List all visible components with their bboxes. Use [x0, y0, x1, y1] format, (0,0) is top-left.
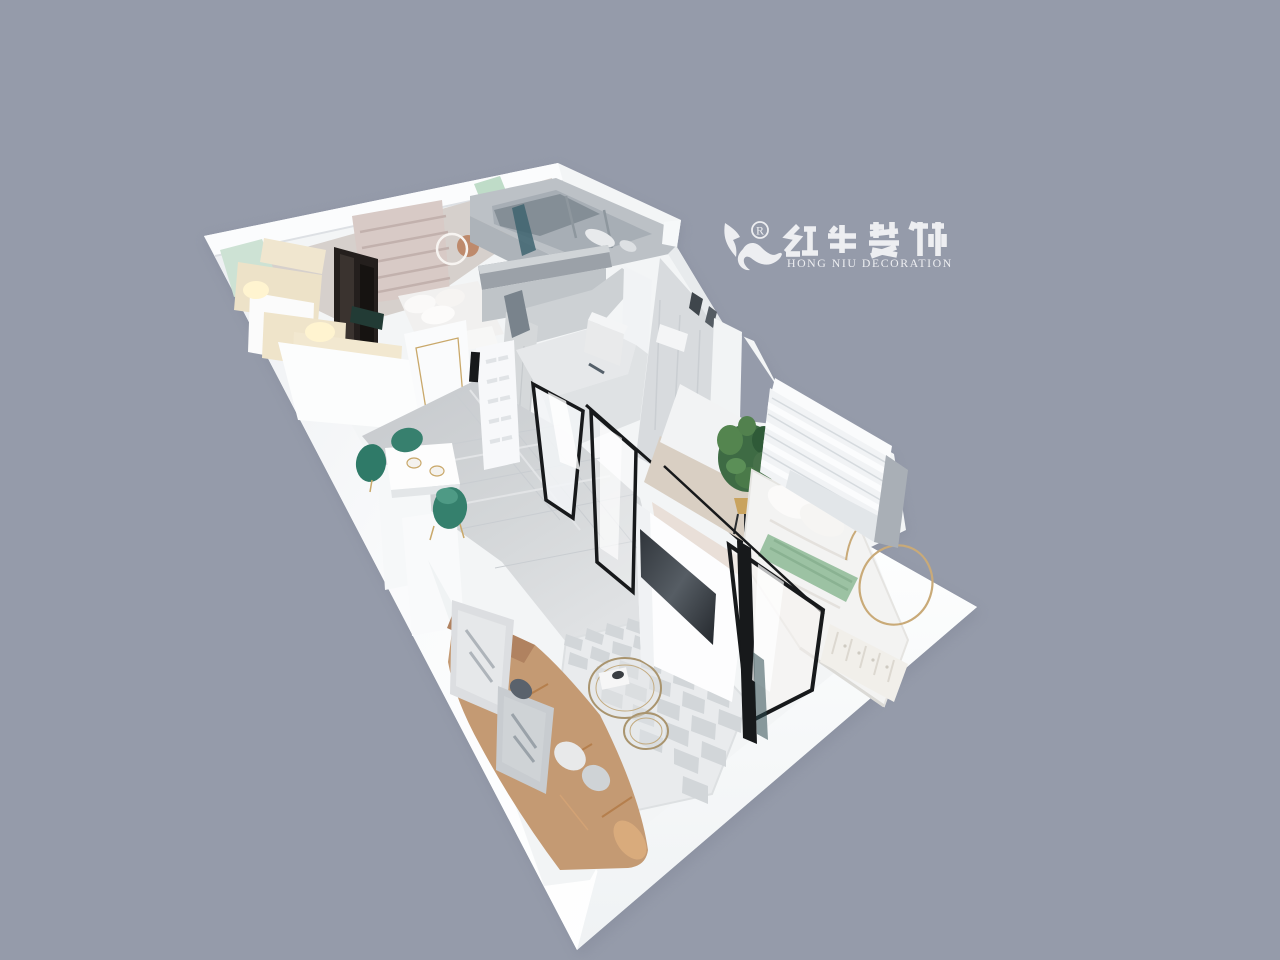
- svg-text:HONG NIU DECORATION: HONG NIU DECORATION: [787, 256, 953, 270]
- svg-text:R: R: [756, 224, 764, 238]
